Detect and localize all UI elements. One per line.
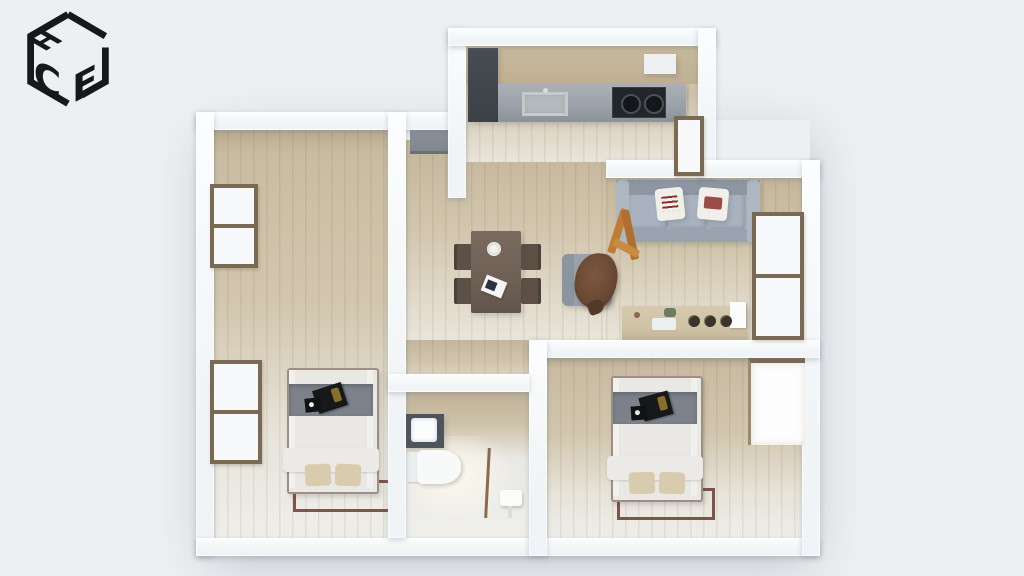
window-left-upper [210,184,258,268]
console-bowl [704,315,716,327]
armchair-back [562,254,574,306]
sofa-pillow [697,187,730,221]
floorplan-scene[interactable]: H C F [0,0,1024,576]
wall-bathroom-top [388,374,529,392]
logo-edge-topright [68,14,105,36]
wall-kitchen-left [448,28,466,198]
console-tray [652,318,676,330]
small-bath-fixture [500,490,522,506]
plate [487,242,501,256]
hcf-logo: H C F [16,6,120,114]
bed-pillow [305,464,332,487]
logo-letter-right: F [72,56,98,113]
bed-pillow [659,472,686,495]
console-bowl [688,315,700,327]
window-left-lower [210,360,262,464]
wall-bedroom-left-divider [388,112,406,538]
bed-right [611,376,703,502]
pillow-print [661,195,678,212]
wall-bedroom-right-left [529,340,547,556]
wall-top-left-wing [196,112,462,130]
kitchen-appliance-box [644,54,676,74]
sofa-pillow [654,187,685,222]
magazine-cover-art [485,279,498,291]
sofa-back [616,180,760,195]
bed-foot-panel [283,448,379,472]
bed-left [287,368,379,494]
window-crossbar [214,224,254,228]
console-green-item [664,308,676,317]
tablet-art [657,395,668,411]
bed-pillow [629,472,656,495]
console-small-item [634,312,640,318]
dining-chair [521,244,541,270]
wall-living-bedroom-divider [529,340,820,358]
book-on-bed [631,405,648,420]
dining-chair [521,278,541,304]
cooktop-burner [644,94,664,114]
cooktop-burner [621,94,641,114]
window-kitchen-right [674,116,704,176]
kitchen-faucet [543,88,548,93]
wall-bottom [196,538,820,556]
kitchen-tall-cabinet [468,48,498,122]
bed-pillow [335,464,362,487]
console-white-box [730,302,746,328]
window-bedroom-right [748,358,805,445]
pillow-print [704,196,723,210]
book-dot [635,410,640,415]
fixture-stem [508,506,512,518]
bathroom-vanity-mirror [406,414,444,448]
window-crossbar [756,274,800,278]
kitchen-sink [522,92,568,116]
console-bowl [720,315,732,327]
book-dot [309,402,314,407]
window-crossbar [214,410,258,414]
tablet-art [330,387,342,403]
wooden-decor-object [606,204,650,266]
logo-letter-left: C [34,51,61,109]
wall-kitchen-top [448,28,716,46]
bathroom-sink [411,418,437,442]
window-living-right [752,212,804,340]
toilet-bowl [417,450,461,484]
front-door [410,128,452,154]
bed-foot-panel [607,456,703,480]
wall-left [196,112,214,556]
wall-living-top [606,160,820,178]
book-on-bed [304,397,321,413]
